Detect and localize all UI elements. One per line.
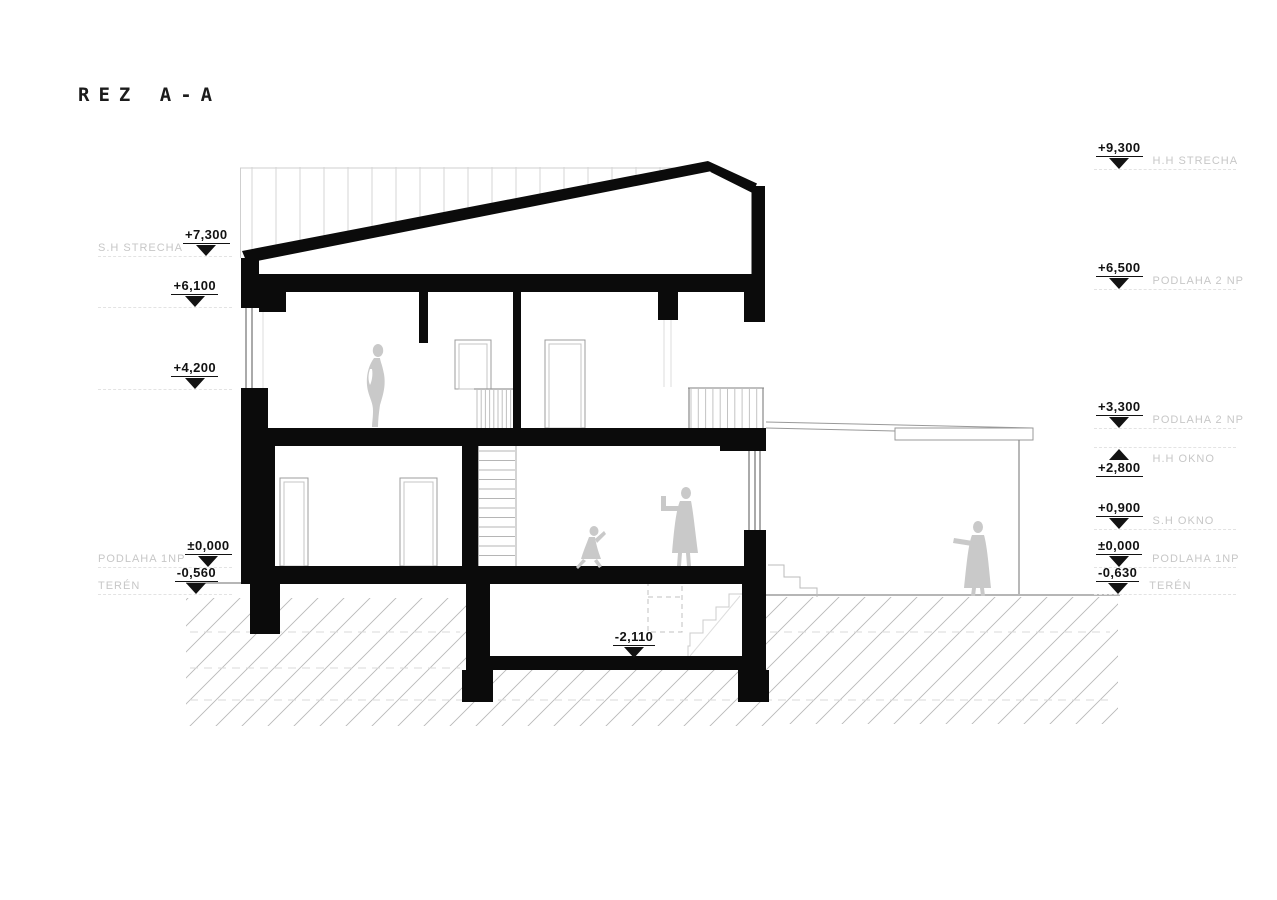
section-drawing <box>0 0 1277 900</box>
level-triangle-icon <box>185 378 205 389</box>
level-marker-podlaha1np-left: PODLAHA 1NP ±0,000 <box>98 538 232 568</box>
level-label: TERÉN <box>98 580 140 594</box>
level-label: S.H OKNO <box>1153 515 1215 529</box>
level-triangle-icon <box>1109 278 1129 289</box>
level-marker-sh-strecha: S.H STRECHA +7,300 <box>98 227 232 257</box>
level-triangle-icon <box>186 583 206 594</box>
sheet: REZ A-A <box>0 0 1277 900</box>
level-value: ±0,000 <box>185 539 231 555</box>
level-label: S.H STRECHA <box>98 242 183 256</box>
level-marker-sh-okno: +0,900 S.H OKNO <box>1094 500 1236 530</box>
level-marker-basement: -2,110 <box>610 628 658 658</box>
basement-floor-slab <box>466 656 766 670</box>
level-marker-teren-left: TERÉN -0,560 <box>98 565 232 595</box>
human-figure-annex <box>953 521 991 596</box>
level-triangle-icon <box>1109 518 1129 529</box>
level-value: +2,800 <box>1096 461 1143 477</box>
level-marker-teren-right: -0,630 TERÉN <box>1094 565 1236 595</box>
human-figure-2f <box>367 344 385 427</box>
door-outlines <box>280 340 585 566</box>
level-value: +6,100 <box>171 279 218 295</box>
level-triangle-icon <box>1109 449 1129 460</box>
level-label: PODLAHA 2 NP <box>1153 275 1244 289</box>
exterior-steps-outline <box>768 565 817 597</box>
stair-railing-balusters <box>477 390 515 428</box>
roof-slab-right <box>708 161 757 193</box>
basement-footing-left <box>462 670 493 702</box>
balcony-railing-balusters <box>691 389 757 428</box>
roof-slab <box>242 161 712 263</box>
level-value: +6,500 <box>1096 261 1143 277</box>
level-triangle-icon <box>1108 583 1128 594</box>
annex-outline <box>766 422 1033 594</box>
level-value: +4,200 <box>171 361 218 377</box>
eave-wall-left <box>241 258 259 308</box>
basement-wall-right <box>742 584 766 660</box>
staircase-treads <box>479 451 515 556</box>
level-marker-podlaha1np-right: ±0,000 PODLAHA 1NP <box>1094 538 1236 568</box>
interior-wall-2f <box>513 292 521 428</box>
ceiling-slab <box>243 274 765 292</box>
level-value: +3,300 <box>1096 400 1143 416</box>
level-triangle-icon <box>624 647 644 658</box>
level-label: PODLAHA 2 NP <box>1153 414 1244 428</box>
exterior-wall-left <box>241 446 275 568</box>
level-value: -0,630 <box>1096 566 1139 582</box>
level-value: -2,110 <box>613 630 656 646</box>
level-value: -0,560 <box>175 566 218 582</box>
level-marker-hh-strecha: +9,300 H.H STRECHA <box>1094 140 1236 170</box>
foundation-left <box>250 584 280 634</box>
level-value: ±0,000 <box>1096 539 1142 555</box>
level-marker-podlaha2np-a: +6,500 PODLAHA 2 NP <box>1094 260 1236 290</box>
cut-structure <box>241 161 769 702</box>
wall-face-lines <box>263 302 671 426</box>
level-triangle-icon <box>1109 158 1129 169</box>
level-value: +7,300 <box>183 228 230 244</box>
level-marker-podlaha2np-b: +3,300 PODLAHA 2 NP <box>1094 399 1236 429</box>
level-label: TERÉN <box>1149 580 1191 594</box>
level-marker-hh-okno: +2,800 H.H OKNO <box>1094 447 1236 477</box>
level-value: +9,300 <box>1096 141 1143 157</box>
level-value: +0,900 <box>1096 501 1143 517</box>
basement-footing-right <box>738 670 769 702</box>
human-figures <box>367 344 991 596</box>
level-label: H.H STRECHA <box>1153 155 1239 169</box>
level-triangle-icon <box>185 296 205 307</box>
human-figure-child <box>576 526 606 569</box>
floor-slab-1f <box>241 566 766 584</box>
level-triangle-icon <box>1109 417 1129 428</box>
level-label: H.H OKNO <box>1153 448 1215 465</box>
level-marker-6100: +6,100 <box>98 278 232 308</box>
floor-slab-2f <box>241 428 766 446</box>
human-figure-1f <box>661 487 698 566</box>
interior-wall-1f <box>462 446 478 568</box>
level-marker-4200: +4,200 <box>98 360 232 390</box>
basement-stair-stringer <box>690 596 740 656</box>
basement-wall-left <box>466 584 490 660</box>
level-triangle-icon <box>196 245 216 256</box>
